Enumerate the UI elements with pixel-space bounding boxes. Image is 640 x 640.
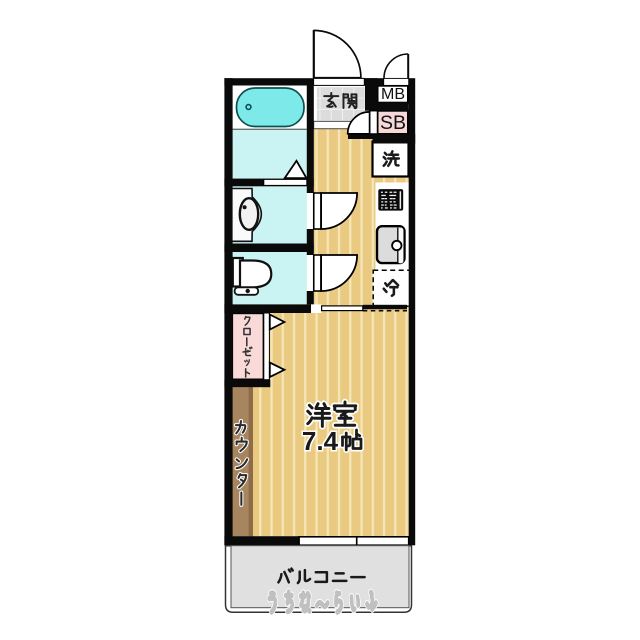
svg-text:SB: SB xyxy=(380,112,406,134)
svg-text:MB: MB xyxy=(381,86,405,103)
svg-text:7.4: 7.4 xyxy=(302,426,339,456)
